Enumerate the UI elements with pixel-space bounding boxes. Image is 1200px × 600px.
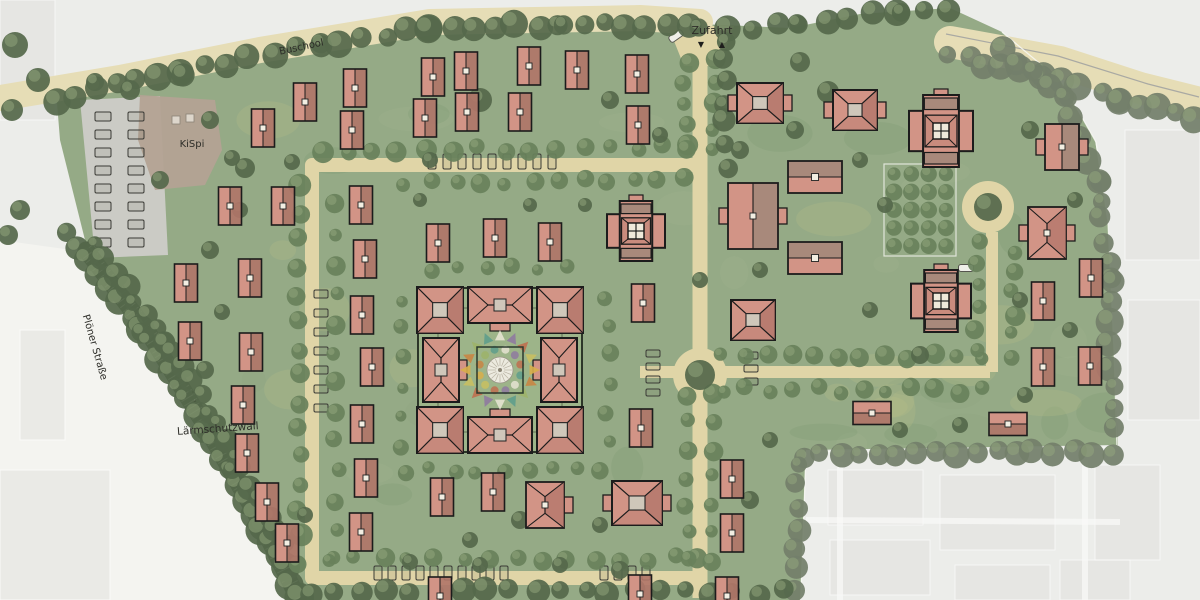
tree [767, 12, 789, 34]
parking-stall [744, 365, 758, 372]
tree [967, 443, 988, 464]
tree [752, 262, 768, 278]
tree [504, 258, 520, 274]
corner-pavilion [537, 287, 583, 333]
small-house [256, 483, 279, 521]
tree [911, 346, 929, 364]
tree [677, 387, 696, 406]
tree [125, 294, 142, 311]
tree [422, 461, 434, 473]
tree [551, 172, 568, 189]
small-house [716, 577, 739, 600]
tree [287, 259, 306, 278]
tree [763, 385, 777, 399]
tree [385, 141, 406, 162]
tree [704, 442, 724, 462]
small-house [361, 348, 384, 386]
tree [472, 557, 488, 573]
arrow-down-icon: ▼ [698, 40, 705, 49]
tree [879, 386, 892, 399]
tree [628, 172, 642, 186]
hipped-building [603, 481, 671, 525]
tree [968, 255, 985, 272]
small-house [219, 187, 242, 225]
tree [939, 203, 953, 217]
gabled-hall [788, 161, 842, 193]
tree [196, 55, 215, 74]
tree [526, 173, 544, 191]
mandala-dot [481, 381, 489, 389]
tree [887, 167, 900, 180]
tree [1104, 418, 1124, 438]
site-plan: BuschoolZufahrtKiSpiPlöner StraßeLärmsch… [0, 0, 1200, 600]
tree [974, 193, 1002, 221]
tree [2, 32, 28, 58]
tree [325, 194, 344, 213]
tree [679, 441, 698, 460]
tree [903, 238, 919, 254]
tree [902, 378, 920, 396]
tree [949, 349, 963, 363]
tree [597, 291, 612, 306]
tree [533, 552, 552, 571]
tree [578, 198, 592, 212]
parking-stall [128, 148, 144, 157]
tree [1008, 246, 1022, 260]
tree [325, 431, 342, 448]
tree [414, 15, 442, 43]
tree [811, 378, 827, 394]
tree [498, 579, 518, 599]
small-house [422, 58, 445, 96]
tree [652, 127, 668, 143]
tree [468, 466, 481, 479]
tree [546, 140, 565, 159]
tree [685, 360, 715, 390]
tree [393, 439, 409, 455]
tree [774, 579, 794, 599]
tree [151, 171, 169, 189]
tree [326, 347, 340, 361]
tree [602, 344, 620, 362]
tree [731, 141, 749, 159]
small-house [853, 402, 891, 425]
tree [120, 80, 140, 100]
tree [552, 557, 568, 573]
tree [1087, 169, 1111, 193]
parking-stall [473, 154, 481, 169]
tree [10, 200, 30, 220]
tree [886, 238, 902, 254]
tree [783, 345, 802, 364]
tree [1101, 270, 1124, 293]
play-equipment [186, 114, 194, 122]
small-house [721, 514, 744, 552]
tree [577, 170, 594, 187]
tree [681, 413, 695, 427]
small-house [629, 575, 652, 600]
small-house [252, 109, 275, 147]
small-house [240, 333, 263, 371]
small-house [175, 264, 198, 302]
faded-city-block [1125, 130, 1200, 260]
small-house [456, 93, 479, 131]
tree [834, 386, 848, 400]
tree [297, 507, 313, 523]
tree [196, 361, 214, 379]
tree [950, 384, 969, 403]
tree [201, 241, 219, 259]
tree [397, 383, 408, 394]
tree [683, 525, 697, 539]
tree [201, 111, 219, 129]
faded-city-block [1060, 560, 1130, 600]
tree [885, 445, 907, 467]
small-house [350, 513, 373, 551]
tree [759, 345, 777, 363]
play-equipment [172, 116, 180, 124]
gabled-hall [719, 183, 787, 249]
tree [554, 15, 573, 34]
tree [970, 343, 984, 357]
parking-stall [646, 363, 660, 370]
tree [459, 553, 473, 567]
tree [903, 202, 920, 219]
tree [471, 174, 491, 194]
tree [738, 348, 754, 364]
small-house [455, 52, 478, 90]
tree [1, 99, 23, 121]
parking-stall [314, 366, 328, 374]
tree [938, 184, 954, 200]
tree [214, 304, 230, 320]
tree [1004, 350, 1020, 366]
small-house [276, 524, 299, 562]
tree [193, 385, 212, 404]
tree [326, 315, 346, 335]
tree [1054, 86, 1074, 106]
tree [975, 380, 989, 394]
lawn-patch [873, 255, 899, 273]
gabled-hall [788, 242, 842, 274]
tree [791, 456, 807, 472]
tree [351, 27, 372, 48]
tree [1012, 292, 1028, 308]
parking-stall [314, 328, 328, 336]
tree [677, 581, 693, 597]
small-house [566, 51, 589, 89]
tree [972, 300, 986, 314]
faded-city-block [940, 475, 1055, 550]
tree [1005, 306, 1025, 326]
tree [943, 442, 970, 469]
tree [1067, 192, 1083, 208]
tree [288, 228, 307, 247]
corner-pavilion [417, 407, 463, 453]
tree [393, 319, 408, 334]
tree [575, 15, 594, 34]
parking-stall [128, 166, 144, 175]
tree [497, 178, 510, 191]
tree [520, 142, 539, 161]
tree [288, 418, 306, 436]
small-house [431, 478, 454, 516]
tree [451, 175, 466, 190]
corner-pavilion [537, 407, 583, 453]
hipped-building [731, 300, 775, 340]
tree [875, 345, 895, 365]
tree [396, 349, 412, 365]
tree [790, 52, 810, 72]
parking-stall [500, 566, 508, 580]
tree [743, 20, 762, 39]
parking-stall [95, 112, 111, 121]
tree [904, 220, 919, 235]
tree [702, 553, 720, 571]
tree [1078, 442, 1104, 468]
tree [852, 152, 868, 168]
parking-stall [128, 184, 144, 193]
tree [886, 220, 902, 236]
tree [481, 261, 495, 275]
tree [861, 0, 885, 24]
tree [449, 465, 464, 480]
tree [500, 10, 528, 38]
hipped-building [728, 83, 792, 123]
tree [904, 442, 927, 465]
tree [850, 348, 869, 367]
tree [674, 75, 691, 92]
tree [1019, 439, 1044, 464]
tree [396, 296, 408, 308]
tree [704, 498, 719, 513]
faded-city-block [1095, 465, 1160, 560]
tree [952, 417, 968, 433]
tree [965, 320, 984, 339]
small-house [482, 473, 505, 511]
tree [332, 462, 347, 477]
tree [571, 461, 585, 475]
label-kispi: KiSpi [180, 139, 205, 150]
tree [329, 229, 342, 242]
tree [706, 414, 722, 430]
tree [836, 8, 858, 30]
tree [714, 347, 727, 360]
parking-stall [646, 376, 660, 383]
tree [326, 372, 346, 392]
arrow-up-icon: ▲ [719, 40, 726, 49]
tree [323, 554, 336, 567]
tree [680, 53, 700, 73]
parking-stall [314, 404, 328, 412]
tree [290, 396, 308, 414]
small-house [427, 224, 450, 262]
tree [290, 363, 310, 383]
tree [938, 238, 953, 253]
tree [924, 378, 944, 398]
tree [862, 302, 878, 318]
small-house [1032, 348, 1055, 386]
tree [830, 349, 848, 367]
parking-stall [128, 220, 144, 229]
tree [972, 233, 988, 249]
tree [784, 381, 800, 397]
tree [904, 166, 920, 182]
tree [877, 197, 893, 213]
tree [604, 435, 616, 447]
tree [920, 202, 937, 219]
tree [736, 378, 753, 395]
small-house [351, 296, 374, 334]
tree [892, 3, 911, 22]
tree [363, 143, 380, 160]
small-house [232, 386, 255, 424]
tree [498, 143, 515, 160]
mandala-dot [511, 351, 519, 359]
site-plan-drawing: BuschoolZufahrtKiSpiPlöner StraßeLärmsch… [0, 0, 1200, 600]
parking-stall [646, 389, 660, 396]
tree [325, 31, 352, 58]
tree [640, 553, 657, 570]
parking-stall [314, 347, 328, 355]
tree [789, 499, 808, 518]
faded-city-block [1128, 300, 1200, 420]
tree [289, 311, 307, 329]
parking-stall [374, 566, 382, 580]
tree [892, 422, 908, 438]
tree [597, 405, 613, 421]
tree [331, 287, 345, 301]
small-house [630, 409, 653, 447]
tree [677, 140, 696, 159]
parking-stall [646, 350, 660, 357]
small-house [632, 284, 655, 322]
tree [713, 49, 733, 69]
small-house [627, 106, 650, 144]
tree [1005, 326, 1017, 338]
tree [1062, 322, 1078, 338]
tree [939, 167, 953, 181]
parking-stall [388, 566, 396, 580]
tree [717, 70, 737, 90]
small-house [414, 99, 437, 137]
tree [785, 556, 808, 579]
tree [284, 154, 300, 170]
small-house [1032, 282, 1055, 320]
tree [346, 550, 360, 564]
tree [718, 159, 738, 179]
tree [678, 472, 693, 487]
tree [26, 68, 50, 92]
parking-stall [416, 566, 424, 580]
tree [788, 14, 807, 33]
faded-city-block [830, 540, 930, 595]
tree [850, 446, 868, 464]
tree [402, 554, 418, 570]
mandala-dot [511, 381, 519, 389]
lawn-patch [720, 256, 748, 289]
tree [587, 551, 606, 570]
tree [424, 173, 440, 189]
tree [805, 346, 823, 364]
tree [413, 193, 427, 207]
tree [234, 44, 259, 69]
tree [657, 14, 680, 37]
small-house [429, 577, 452, 600]
tree [717, 386, 730, 399]
small-house [355, 459, 378, 497]
tree [692, 272, 708, 288]
parking-stall [314, 385, 328, 393]
tree [650, 580, 670, 600]
tree [523, 198, 537, 212]
small-house [989, 413, 1027, 436]
small-house [626, 55, 649, 93]
parking-stall [314, 309, 328, 317]
hipped-house [1019, 207, 1075, 259]
small-house [518, 47, 541, 85]
tree [424, 263, 439, 278]
mandala-dot [481, 351, 489, 359]
small-house [351, 405, 374, 443]
parking-stall [95, 166, 111, 175]
tree [1006, 263, 1023, 280]
tree [601, 91, 619, 109]
tree [681, 551, 697, 567]
tree [921, 238, 937, 254]
tree [1144, 93, 1171, 120]
tree [1089, 206, 1110, 227]
tree [224, 150, 240, 166]
tree [326, 404, 344, 422]
tree [171, 63, 194, 86]
tree [1021, 121, 1039, 139]
parking-stall [95, 220, 111, 229]
tree [705, 468, 718, 481]
parking-stall [488, 154, 496, 169]
tree [462, 17, 486, 41]
tree [331, 523, 344, 536]
tree [546, 461, 559, 474]
tree [611, 561, 629, 579]
small-house [539, 223, 562, 261]
tree [579, 582, 596, 599]
parking-stall [128, 202, 144, 211]
tree [592, 517, 608, 533]
small-house [239, 259, 262, 297]
tree [1041, 443, 1065, 467]
tree [293, 477, 309, 493]
tree [937, 0, 960, 22]
faded-city-block [955, 565, 1050, 600]
small-house [484, 219, 507, 257]
tree [1105, 377, 1123, 395]
small-house [341, 111, 364, 149]
tree [676, 498, 693, 515]
tree [376, 548, 395, 567]
parking-stall [128, 112, 144, 121]
faded-city-block [20, 330, 65, 440]
corner-pavilion [417, 287, 463, 333]
small-house [179, 322, 202, 360]
tree [920, 184, 936, 200]
tree [326, 256, 346, 276]
tree [938, 46, 956, 64]
small-house [509, 93, 532, 131]
lawn-patch [790, 424, 858, 441]
tree [469, 138, 485, 154]
small-house [350, 186, 373, 224]
